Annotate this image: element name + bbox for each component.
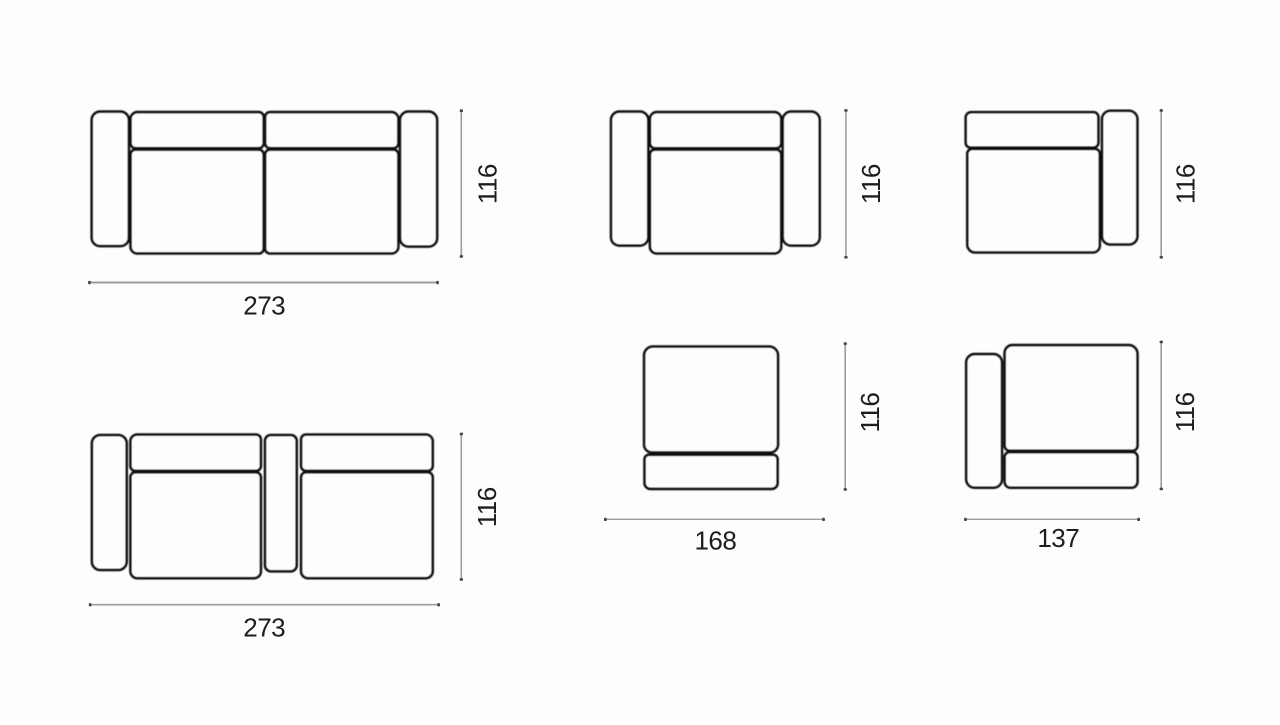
svg-text:168: 168	[694, 526, 736, 556]
svg-text:116: 116	[1170, 392, 1200, 432]
svg-text:116: 116	[472, 487, 502, 527]
svg-text:116: 116	[855, 393, 885, 433]
svg-text:273: 273	[243, 291, 285, 321]
svg-text:137: 137	[1037, 523, 1079, 553]
svg-text:116: 116	[473, 164, 503, 204]
svg-text:116: 116	[1170, 164, 1200, 204]
svg-text:273: 273	[243, 613, 285, 643]
svg-text:116: 116	[856, 164, 886, 204]
